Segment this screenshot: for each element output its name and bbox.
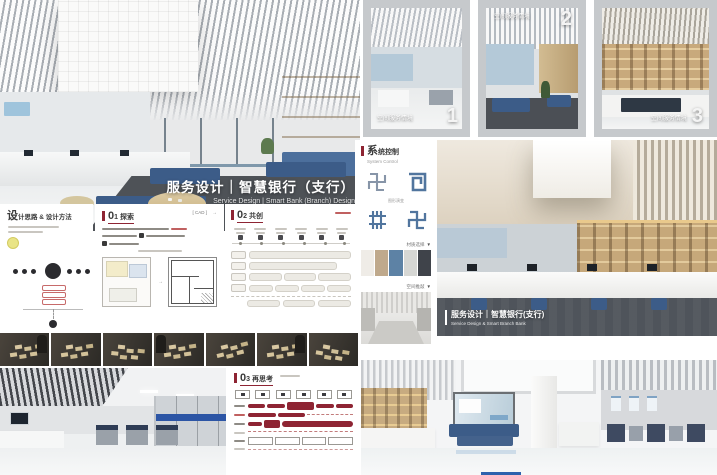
- system-panel-header: 系统控制: [361, 145, 431, 158]
- hero-render: 服务设计｜智慧银行（支行） Service Design | Smart Ban…: [0, 0, 360, 231]
- diagram-node: [31, 269, 36, 274]
- journey-stage: [315, 228, 329, 240]
- journey-row: [231, 284, 351, 292]
- explore-tag: [ CAD ]: [192, 210, 207, 215]
- chevron-down-icon: ▼: [427, 243, 431, 248]
- explore-header: 01 探索 [ CAD ] →: [102, 210, 217, 224]
- br-media-screen: [453, 392, 515, 426]
- br-sofa: [457, 436, 513, 446]
- card-sorting-cards: [272, 344, 279, 349]
- bl-kiosk: [126, 430, 148, 445]
- journey-bar: [301, 285, 325, 292]
- material-swatch-wood: [375, 250, 388, 276]
- journey-row: [231, 262, 351, 270]
- rethink-header: 03 再思考: [234, 372, 353, 386]
- scenario-number: 2: [561, 11, 572, 27]
- method-node-diagram: [7, 237, 86, 329]
- journey-bar: [249, 273, 282, 281]
- screen-content: [459, 399, 481, 413]
- card-sorting-cards: [15, 344, 22, 349]
- hero-monitor: [24, 150, 33, 156]
- design-method-panel: 设计思路 & 设计方法: [0, 204, 93, 335]
- explore-note-line: [102, 233, 217, 238]
- cocreate-title: 02 共创: [237, 209, 263, 223]
- br-kiosk: [607, 424, 625, 442]
- workshop-photo: [257, 333, 306, 366]
- hero-plant: [261, 138, 274, 154]
- scenario2-window: [486, 44, 534, 85]
- materials-label: 材质选择: [407, 242, 425, 248]
- br-center-counter: [559, 422, 599, 446]
- blueprint-row: [234, 413, 353, 417]
- blueprint-row-label: [234, 440, 245, 442]
- main-interior-render: 服务设计｜智慧银行(支行) Service Design & Smart Bra…: [437, 140, 717, 336]
- blueprint-bar: [248, 404, 265, 408]
- cad-wall: [189, 276, 190, 304]
- plan-caption-line: [138, 250, 182, 252]
- scenario-panel-1: 空间服务情境 1: [363, 0, 470, 137]
- cad-wall: [194, 288, 214, 289]
- scenario-number: 1: [447, 108, 458, 124]
- blueprint-row: [234, 431, 353, 434]
- journey-bar: [247, 300, 280, 307]
- hero-sofa: [266, 162, 346, 177]
- method-subtext-line: [8, 231, 43, 233]
- diagram-tag: [42, 285, 66, 291]
- cocreate-highlight-tag: [335, 212, 351, 214]
- material-swatch-marble: [361, 250, 374, 276]
- scenario-label: 空间服务情境: [651, 113, 687, 124]
- sketch-floor: [368, 321, 424, 344]
- scenario3-caption: 空间服务情境 3: [651, 108, 703, 124]
- blueprint-support-box: [248, 437, 273, 445]
- page-title: 服务设计｜智慧银行（支行）: [167, 176, 356, 196]
- bl-ceiling-light: [140, 390, 158, 393]
- pattern-evolve-label: 图形演变: [386, 198, 406, 204]
- workshop-participant: [295, 335, 305, 353]
- journey-bar: [327, 285, 351, 292]
- bl-floor: [0, 448, 226, 475]
- red-accent-bar: [234, 373, 237, 383]
- red-accent-bar: [361, 146, 364, 156]
- journey-stage: [233, 228, 247, 240]
- render-monitor: [587, 264, 597, 271]
- journey-bar: [318, 273, 351, 281]
- material-swatches: [361, 250, 431, 276]
- cad-hatch: [201, 293, 213, 303]
- perspective-sketch: [361, 292, 431, 344]
- cocreate-header: 02 共创: [231, 209, 351, 223]
- journey-bar: [249, 285, 273, 292]
- phase-box: [235, 390, 250, 399]
- phase-box: [255, 390, 270, 399]
- diagram-dashed-connector: [53, 309, 54, 319]
- workshop-photo: [309, 333, 358, 366]
- text-line-highlight: [171, 228, 187, 230]
- blueprint-bar: [248, 413, 276, 417]
- blueprint-row: [234, 448, 353, 450]
- phase-box: [337, 390, 352, 399]
- diagram-node: [85, 269, 90, 274]
- emotion-curve-line: [248, 449, 353, 450]
- method-panel-title: 设计思路 & 设计方法: [7, 210, 86, 223]
- scenario1-kiosk: [429, 90, 453, 105]
- scenario1-caption: 空间服务情境 1: [377, 108, 458, 124]
- card-sorting-cards: [117, 344, 124, 349]
- journey-bar: [249, 251, 351, 259]
- explore-notes: [102, 228, 217, 246]
- red-accent-bar: [102, 211, 105, 221]
- card-sorting-cards: [66, 344, 73, 349]
- render-caption-en: Service Design & Smart Branch Bank: [451, 321, 544, 326]
- diagram-node: [22, 269, 27, 274]
- person-icon: [258, 235, 263, 240]
- workshop-participant: [37, 335, 47, 353]
- spiral-pattern-icon: [405, 170, 429, 194]
- scenario-photo-1: 空间服务情境 1: [371, 8, 462, 129]
- scenario2-caption: 空间服务情境 2: [494, 11, 572, 27]
- diagram-center-node: [45, 263, 61, 279]
- book-icon: [102, 241, 107, 246]
- workshop-photo: [154, 333, 203, 366]
- br-screen-reflection: [456, 450, 516, 454]
- blueprint-row-label: [234, 423, 245, 425]
- workshop-participant: [156, 335, 166, 353]
- person-icon: [278, 235, 283, 240]
- material-swatch-dark: [418, 250, 431, 276]
- arrow-right-icon: →: [158, 279, 163, 285]
- br-kiosk: [629, 426, 643, 441]
- render-monitor: [467, 264, 477, 271]
- system-control-panel: 系统控制 System Control 图形演变 材质选择 ▼: [355, 140, 437, 359]
- scenario2-sofa: [492, 98, 531, 113]
- person-icon: [238, 235, 243, 240]
- blueprint-support-box: [275, 437, 300, 445]
- sketch-wall-right: [417, 308, 431, 331]
- plan-zone-yellow: [106, 261, 128, 277]
- material-swatch-gray: [404, 250, 417, 276]
- blueprint-long-bar: [282, 421, 353, 427]
- br-floor: [361, 448, 717, 475]
- scenario1-counter: [378, 90, 409, 107]
- scenario3-ceiling: [602, 8, 709, 49]
- blueprint-dashed-line: [307, 414, 353, 417]
- system-panel-subtitle: System Control: [367, 159, 431, 164]
- blueprint-phase-row: [235, 390, 352, 399]
- fret-pattern-icon: [405, 208, 429, 232]
- chevron-down-icon: ▼: [427, 285, 431, 290]
- journey-bar: [275, 285, 299, 292]
- journey-bar: [318, 300, 351, 307]
- blueprint-row: [234, 420, 353, 428]
- bl-kiosk: [156, 430, 178, 445]
- screen-content-bar: [490, 415, 508, 420]
- system-panel-title: 系统控制: [367, 145, 399, 158]
- scenario-label: 空间服务情境: [494, 11, 530, 22]
- br-ceiling-light-panel: [461, 360, 596, 394]
- scenario-photo-3: 空间服务情境 3: [602, 8, 709, 129]
- blueprint-row: [234, 402, 353, 410]
- bottom-right-render: [361, 360, 717, 475]
- card-sorting-cards: [220, 344, 228, 350]
- journey-bar: [283, 300, 316, 307]
- blueprint-key-block: [287, 402, 315, 410]
- explore-panel: 01 探索 [ CAD ] → →: [95, 204, 224, 335]
- person-icon: [319, 235, 324, 240]
- blueprint-bar: [248, 422, 262, 426]
- scenario-panel-3: 空间服务情境 3: [594, 0, 717, 137]
- journey-stage-columns: [231, 228, 351, 240]
- scenario-photo-2: 空间服务情境 2: [486, 8, 578, 129]
- row-label-pill: [231, 273, 246, 281]
- diagram-tag: [42, 299, 66, 305]
- fret-pattern-icon: [365, 170, 389, 194]
- hero-wall-sign: [4, 102, 30, 116]
- blueprint-row-label: [234, 414, 245, 416]
- diagram-node: [13, 269, 18, 274]
- journey-stage: [274, 228, 288, 240]
- journey-bar: [249, 262, 337, 270]
- cup-icon: [339, 235, 344, 240]
- workshop-photo: [206, 333, 255, 366]
- blueprint-row-label: [234, 432, 245, 434]
- materials-label-row: 材质选择 ▼: [361, 242, 431, 248]
- blueprint-bar: [267, 404, 284, 408]
- blueprint-support-box: [302, 437, 327, 445]
- sketch-label-row: 空间推敲 ▼: [361, 284, 431, 290]
- journey-stage: [335, 228, 349, 240]
- render-monitor: [647, 264, 657, 271]
- scenario2-plant: [541, 81, 550, 98]
- render-caption-block: 服务设计｜智慧银行(支行) Service Design & Smart Bra…: [445, 309, 544, 326]
- hero-monitor: [70, 150, 79, 156]
- card-sorting-cards: [169, 344, 176, 349]
- text-line: [109, 243, 139, 245]
- blueprint-bar: [336, 404, 353, 408]
- rethink-subtitle-line: [280, 375, 300, 377]
- row-label-pill: [231, 262, 246, 270]
- blueprint-row: [234, 437, 353, 445]
- dense-fret-pattern-icon: [365, 208, 389, 232]
- blueprint-bar: [278, 413, 306, 417]
- plan-zone-blue: [129, 264, 147, 278]
- plan-caption: [102, 250, 217, 252]
- blueprint-row-label: [234, 405, 245, 407]
- material-swatch-blue: [389, 250, 402, 276]
- br-kiosk: [669, 426, 683, 441]
- bottom-left-render: [0, 368, 226, 475]
- method-subtext-line: [8, 226, 59, 228]
- plan-zone-neutral: [109, 288, 137, 302]
- render-chair: [591, 298, 607, 310]
- diagram-sun-node: [7, 237, 19, 249]
- sketch-label: 空间推敲: [407, 284, 425, 290]
- blueprint-bar: [316, 404, 333, 408]
- coffee-icon: [139, 233, 144, 238]
- br-poster: [647, 396, 657, 411]
- journey-footnote-row: [231, 296, 351, 307]
- row-label-pill: [231, 284, 246, 292]
- render-caption: 服务设计｜智慧银行(支行): [451, 309, 544, 320]
- render-teller-counter: [437, 272, 717, 298]
- floor-plans: →: [102, 257, 217, 307]
- caption-accent-bar: [445, 310, 447, 325]
- scenario-panel-2: 空间服务情境 2: [478, 0, 586, 137]
- render-chair: [651, 298, 667, 310]
- render-monitor: [527, 264, 537, 271]
- diagram-output-node: [49, 320, 57, 328]
- journey-stage: [253, 228, 267, 240]
- phase-box: [317, 390, 332, 399]
- phase-box: [296, 390, 311, 399]
- br-kiosk: [687, 424, 705, 442]
- journey-stage: [294, 228, 308, 240]
- hero-monitor: [120, 150, 129, 156]
- scenario3-shelf-wall: [602, 44, 709, 90]
- phase-box: [276, 390, 291, 399]
- text-line: [102, 235, 137, 237]
- cad-floor-plan: [168, 257, 217, 307]
- row-label-pill: [231, 251, 246, 259]
- journey-axis: [232, 243, 350, 247]
- workshop-photo: [0, 333, 49, 366]
- explore-title: 01 探索: [108, 210, 134, 224]
- workshop-photo-strip: [0, 333, 358, 366]
- explore-note-line: [102, 228, 217, 230]
- text-line: [146, 235, 185, 237]
- cocreate-panel: 02 共创: [225, 204, 357, 335]
- rethink-panel: 03 再思考: [228, 367, 359, 475]
- text-line: [102, 228, 169, 230]
- rethink-title: 03 再思考: [240, 372, 273, 386]
- bl-blue-accent-band: [156, 414, 226, 421]
- journey-row: [231, 251, 351, 259]
- br-poster: [629, 396, 639, 411]
- scenario1-window: [371, 54, 413, 81]
- bl-kiosk: [96, 430, 118, 445]
- hero-ceiling-lightbox: [58, 0, 198, 92]
- blueprint-row-label: [234, 448, 245, 450]
- render-ceiling-cube: [533, 140, 611, 198]
- journey-row: [231, 273, 351, 281]
- diagram-tag: [42, 292, 66, 298]
- sketch-wall-left: [361, 308, 375, 331]
- scenario2-bench: [547, 95, 571, 107]
- scenario-label: 空间服务情境: [377, 113, 413, 124]
- hero-title-block: 服务设计｜智慧银行（支行） Service Design | Smart Ban…: [167, 176, 356, 205]
- journey-bar: [284, 273, 317, 281]
- person-icon: [299, 235, 304, 240]
- diagram-node: [67, 269, 72, 274]
- blueprint-support-box: [328, 437, 353, 445]
- scenario-number: 3: [692, 108, 703, 124]
- scenario1-ceiling: [371, 8, 462, 49]
- render-window: [437, 228, 507, 258]
- card-sorting-cards: [323, 344, 331, 349]
- workshop-photo: [103, 333, 152, 366]
- br-kiosk: [647, 424, 665, 442]
- arrow-right-icon: →: [212, 210, 217, 216]
- red-accent-bar: [231, 210, 234, 220]
- blueprint-key-block: [264, 420, 280, 428]
- bl-wall-screen: [10, 412, 29, 425]
- explore-note-line: [102, 241, 217, 246]
- br-poster: [611, 396, 621, 411]
- br-pillar: [531, 376, 557, 448]
- blueprint-dashed-line: [248, 431, 353, 434]
- pattern-glyph-grid: 图形演变: [361, 168, 431, 234]
- zoned-floor-plan: [102, 257, 151, 307]
- cad-wall: [171, 276, 199, 277]
- diagram-node: [76, 269, 81, 274]
- workshop-photo: [51, 333, 100, 366]
